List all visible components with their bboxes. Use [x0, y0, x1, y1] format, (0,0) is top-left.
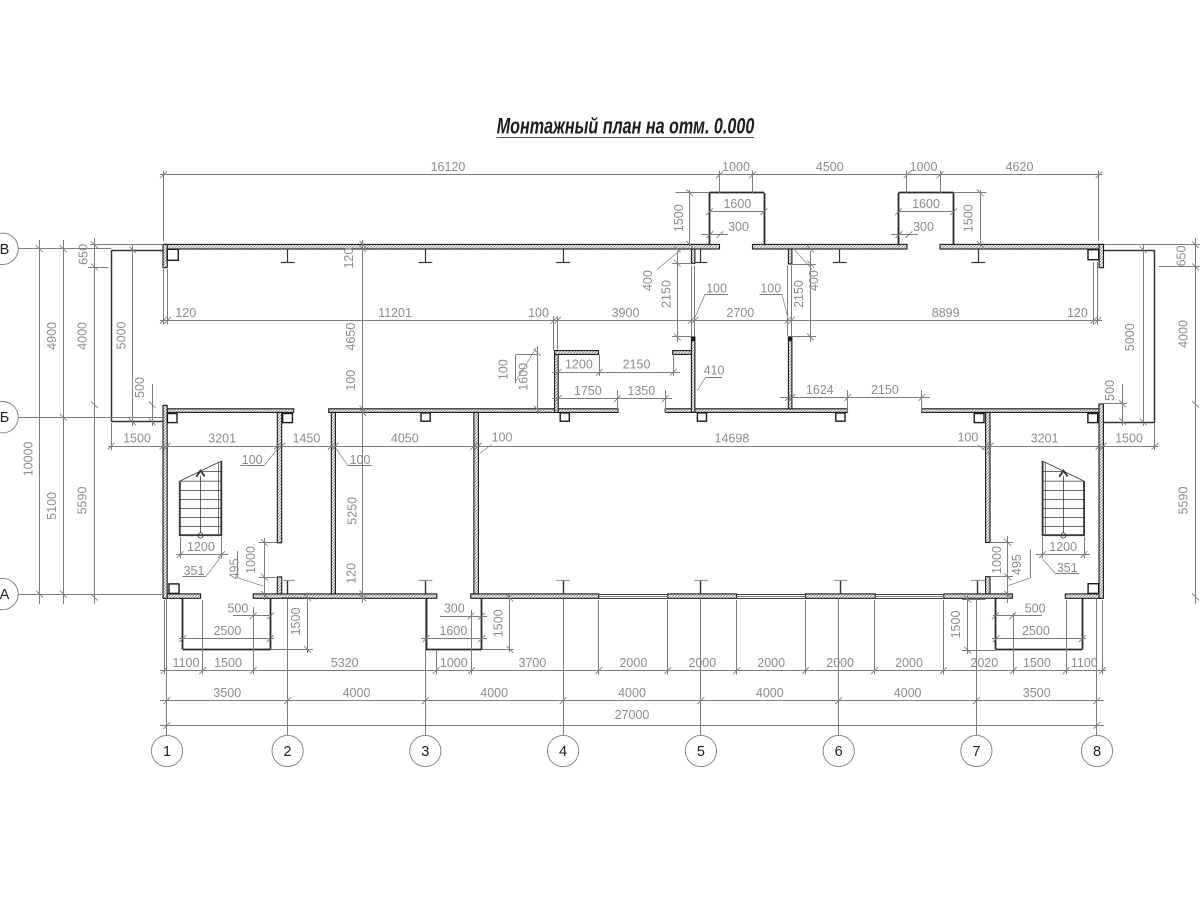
svg-text:1500: 1500 [1023, 656, 1051, 670]
svg-text:120: 120 [175, 306, 196, 320]
svg-text:4000: 4000 [1176, 320, 1190, 348]
svg-text:1200: 1200 [565, 358, 593, 372]
svg-text:3700: 3700 [518, 656, 546, 670]
svg-text:3500: 3500 [213, 686, 241, 700]
svg-text:4000: 4000 [894, 686, 922, 700]
svg-text:400: 400 [641, 270, 655, 291]
svg-text:650: 650 [76, 244, 90, 265]
svg-text:8: 8 [1093, 744, 1101, 760]
svg-text:100: 100 [528, 306, 549, 320]
svg-text:4000: 4000 [618, 686, 646, 700]
svg-text:351: 351 [1057, 561, 1078, 575]
svg-text:1624: 1624 [806, 383, 834, 397]
svg-text:650: 650 [1174, 246, 1188, 267]
svg-text:2000: 2000 [619, 656, 647, 670]
svg-text:300: 300 [444, 602, 465, 616]
svg-text:4000: 4000 [756, 686, 784, 700]
svg-text:7: 7 [972, 744, 980, 760]
svg-text:1: 1 [163, 744, 171, 760]
svg-text:1500: 1500 [214, 656, 242, 670]
svg-text:В: В [0, 242, 9, 258]
svg-text:5590: 5590 [76, 487, 90, 515]
svg-text:Монтажный план на отм. 0.000: Монтажный план на отм. 0.000 [497, 114, 755, 139]
svg-text:5: 5 [697, 744, 705, 760]
svg-text:3900: 3900 [612, 306, 640, 320]
svg-text:2150: 2150 [792, 280, 806, 308]
svg-text:100: 100 [242, 453, 263, 467]
svg-text:495: 495 [228, 558, 242, 579]
svg-text:2150: 2150 [871, 383, 899, 397]
svg-text:4: 4 [559, 744, 567, 760]
svg-text:1600: 1600 [912, 197, 940, 211]
svg-text:2000: 2000 [826, 656, 854, 670]
svg-text:100: 100 [760, 282, 781, 296]
svg-text:4000: 4000 [480, 686, 508, 700]
svg-text:4050: 4050 [391, 432, 419, 446]
svg-text:1350: 1350 [627, 384, 655, 398]
svg-text:120: 120 [344, 563, 358, 584]
svg-text:100: 100 [350, 453, 371, 467]
svg-text:2700: 2700 [726, 306, 754, 320]
svg-text:5000: 5000 [114, 321, 128, 349]
svg-text:1500: 1500 [672, 204, 686, 232]
svg-text:1750: 1750 [574, 384, 602, 398]
svg-text:8899: 8899 [932, 306, 960, 320]
svg-text:2500: 2500 [213, 624, 241, 638]
svg-text:500: 500 [1025, 601, 1046, 615]
svg-text:3500: 3500 [1023, 686, 1051, 700]
svg-text:2500: 2500 [1022, 624, 1050, 638]
svg-text:2020: 2020 [970, 656, 998, 670]
svg-text:1500: 1500 [949, 611, 963, 639]
svg-text:100: 100 [496, 359, 510, 380]
svg-text:2150: 2150 [623, 358, 651, 372]
svg-text:27000: 27000 [615, 708, 650, 722]
svg-text:100: 100 [344, 370, 358, 391]
svg-text:1600: 1600 [723, 197, 751, 211]
svg-text:Б: Б [0, 410, 9, 426]
svg-text:100: 100 [706, 282, 727, 296]
svg-text:1450: 1450 [292, 432, 320, 446]
svg-text:1500: 1500 [1115, 432, 1143, 446]
svg-text:3201: 3201 [208, 432, 236, 446]
svg-text:1500: 1500 [289, 608, 303, 636]
svg-text:500: 500 [227, 601, 248, 615]
svg-text:120: 120 [342, 248, 356, 269]
svg-text:4000: 4000 [343, 686, 371, 700]
svg-text:1000: 1000 [990, 546, 1004, 574]
svg-text:2000: 2000 [757, 656, 785, 670]
svg-text:410: 410 [704, 364, 725, 378]
svg-text:2150: 2150 [659, 280, 673, 308]
svg-text:4500: 4500 [816, 160, 844, 174]
svg-text:1000: 1000 [244, 546, 258, 574]
svg-text:1500: 1500 [491, 609, 505, 637]
svg-text:1000: 1000 [910, 160, 938, 174]
svg-text:5320: 5320 [331, 656, 359, 670]
svg-text:120: 120 [1067, 306, 1088, 320]
svg-text:1100: 1100 [1071, 656, 1098, 670]
svg-text:1600: 1600 [439, 624, 467, 638]
svg-text:1500: 1500 [123, 432, 151, 446]
svg-text:5250: 5250 [345, 497, 359, 525]
svg-text:1100: 1100 [173, 656, 200, 670]
svg-text:495: 495 [1010, 554, 1024, 575]
svg-text:А: А [0, 587, 10, 603]
svg-text:10000: 10000 [22, 441, 36, 476]
svg-text:5590: 5590 [1176, 487, 1190, 515]
svg-text:2000: 2000 [688, 656, 716, 670]
svg-text:500: 500 [133, 377, 147, 398]
svg-text:14698: 14698 [715, 432, 750, 446]
svg-text:100: 100 [492, 431, 513, 445]
svg-text:4650: 4650 [344, 323, 358, 351]
svg-text:500: 500 [1103, 380, 1117, 401]
svg-text:4900: 4900 [45, 322, 59, 350]
svg-text:3201: 3201 [1031, 432, 1059, 446]
svg-text:2000: 2000 [895, 656, 923, 670]
svg-text:4620: 4620 [1006, 160, 1034, 174]
svg-text:6: 6 [835, 744, 843, 760]
svg-text:400: 400 [807, 270, 821, 291]
svg-text:3: 3 [421, 744, 429, 760]
svg-text:11201: 11201 [378, 306, 412, 320]
svg-text:100: 100 [957, 431, 978, 445]
svg-text:2: 2 [284, 744, 292, 760]
svg-text:300: 300 [728, 220, 749, 234]
svg-text:300: 300 [913, 220, 934, 234]
svg-text:1200: 1200 [187, 540, 215, 554]
svg-text:1000: 1000 [440, 656, 468, 670]
svg-text:16120: 16120 [431, 160, 466, 174]
svg-text:1500: 1500 [962, 204, 976, 232]
svg-text:4000: 4000 [76, 322, 90, 350]
svg-text:1200: 1200 [1049, 540, 1077, 554]
svg-text:5000: 5000 [1123, 323, 1137, 351]
svg-text:1000: 1000 [722, 160, 750, 174]
svg-text:5100: 5100 [45, 492, 59, 520]
